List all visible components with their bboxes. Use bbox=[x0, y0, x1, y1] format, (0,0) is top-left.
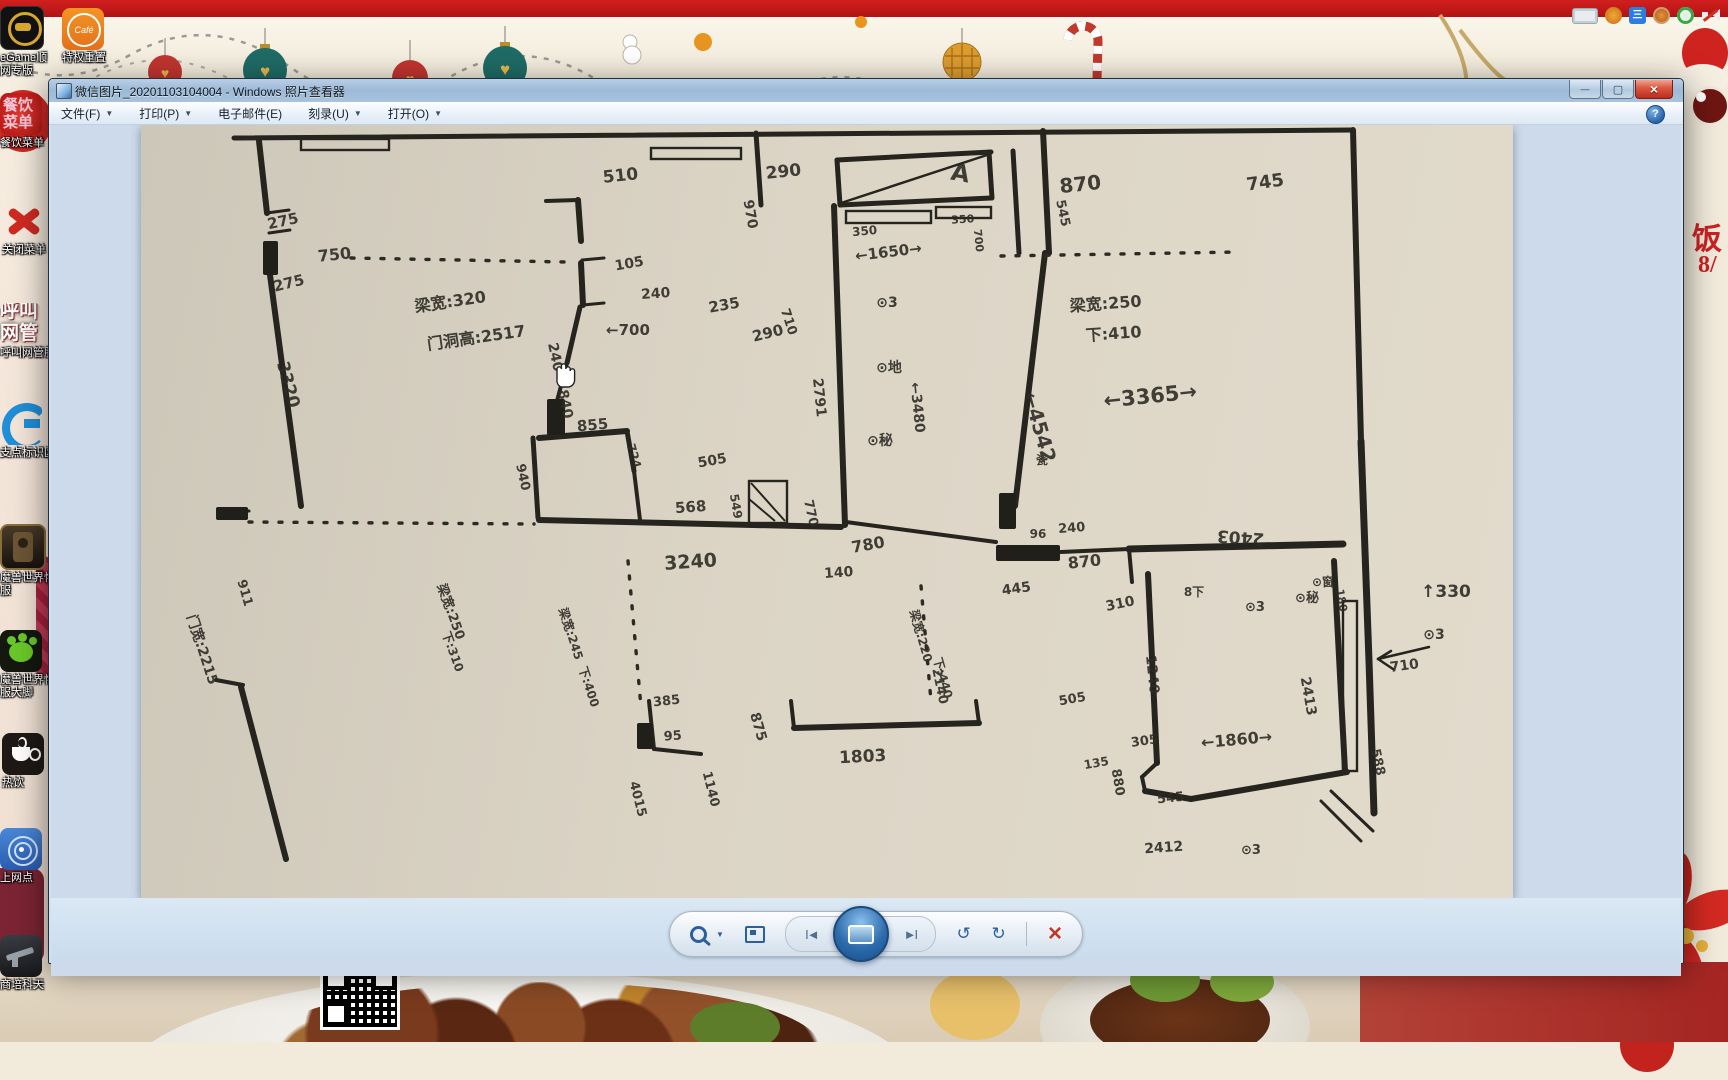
close-button[interactable]: × bbox=[1635, 80, 1673, 99]
plan-annotation: 140 bbox=[824, 564, 855, 582]
plan-annotation: 545 bbox=[1156, 790, 1185, 808]
plan-annotation: 385 bbox=[652, 693, 681, 711]
plan-annotation: 724 bbox=[624, 442, 644, 470]
menu-item-5[interactable]: 打开(O)▼ bbox=[388, 105, 442, 122]
menu-item-2[interactable]: 打印(P)▼ bbox=[139, 105, 192, 122]
plan-annotation: 2403 bbox=[1216, 525, 1265, 548]
plan-annotation: 290 bbox=[750, 321, 785, 346]
gun-icon bbox=[0, 935, 42, 977]
maximize-button[interactable]: ▢ bbox=[1602, 80, 1634, 99]
navigation-pill: I◄ ►I bbox=[785, 916, 936, 952]
floorplan-photo[interactable]: 5102908707452757502753320梁宽:320门洞高:25179… bbox=[141, 125, 1513, 898]
cafe-icon: Café bbox=[62, 8, 104, 50]
plan-annotation: 4015 bbox=[626, 780, 649, 819]
system-tray: 三 bbox=[1565, 6, 1718, 24]
plan-annotation: 1803 bbox=[839, 746, 887, 768]
slideshow-icon bbox=[848, 925, 874, 944]
wow-icon bbox=[0, 524, 46, 570]
plan-annotation: 梁宽:245 bbox=[556, 605, 587, 662]
egame-icon bbox=[0, 6, 44, 50]
window-title: 微信图片_20201103104004 - Windows 照片查看器 bbox=[75, 83, 345, 100]
plan-annotation: 549 bbox=[727, 493, 745, 520]
plan-annotation: 240 bbox=[1058, 520, 1086, 537]
plan-annotation: 门洞高:2517 bbox=[426, 321, 527, 354]
gsign-icon bbox=[0, 403, 42, 445]
plan-annotation: 2791 bbox=[809, 377, 829, 417]
java-icon bbox=[2, 733, 44, 775]
plan-annotation: 510 bbox=[602, 164, 640, 188]
plan-annotation: ←3480 bbox=[906, 382, 927, 434]
call-icon: 呼叫网管 bbox=[0, 303, 42, 345]
desktop-icon-label: 商培科天 bbox=[0, 979, 96, 992]
menu-icon: 餐饮菜单 bbox=[0, 93, 42, 135]
plan-annotation: 梁宽:220 bbox=[906, 607, 936, 664]
orange-dot bbox=[694, 33, 712, 51]
plan-annotation: 105 bbox=[614, 254, 646, 275]
rotate-right-button[interactable]: ↻ bbox=[992, 924, 1006, 944]
plan-annotation: 710 bbox=[1389, 656, 1420, 676]
plan-annotation: 880 bbox=[1108, 768, 1127, 797]
rotate-left-button[interactable]: ↺ bbox=[957, 924, 971, 944]
3vjia-blue-icon[interactable]: 三 bbox=[1629, 7, 1646, 24]
plan-annotation: 95 bbox=[663, 728, 682, 744]
snowman-ornament bbox=[623, 35, 641, 64]
plan-annotation: 瓷 bbox=[1036, 452, 1048, 467]
orange-dot bbox=[855, 16, 867, 28]
plan-annotation: 875 bbox=[746, 711, 769, 744]
santa-decoration bbox=[1680, 28, 1728, 138]
svg-text:♥: ♥ bbox=[500, 60, 510, 79]
volume-muted-icon[interactable] bbox=[1701, 7, 1718, 24]
chevron-down-icon: ▼ bbox=[716, 930, 724, 939]
plan-annotation: 505 bbox=[697, 451, 729, 472]
plan-annotation: 96 bbox=[1030, 527, 1047, 541]
floorplan-sketch: 5102908707452757502753320梁宽:320门洞高:25179… bbox=[141, 125, 1513, 898]
plan-annotation: ↑330 bbox=[1421, 582, 1471, 602]
plan-annotation: ←700 bbox=[606, 321, 650, 339]
help-icon[interactable]: ? bbox=[1646, 105, 1665, 124]
menu-item-4[interactable]: 刻录(U)▼ bbox=[308, 105, 362, 122]
plan-annotation: 911 bbox=[233, 578, 255, 608]
plan-annotation: 568 bbox=[674, 497, 706, 517]
plan-annotation: ⊙3 bbox=[1241, 843, 1261, 858]
wifi-icon bbox=[0, 828, 42, 870]
plan-annotation: 3320 bbox=[272, 359, 304, 410]
plan-annotation: ←1860→ bbox=[1200, 727, 1273, 752]
plan-annotation: 8下 bbox=[1184, 585, 1204, 599]
plan-annotation: 445 bbox=[1001, 579, 1032, 599]
plan-annotation: ←1650→ bbox=[854, 239, 923, 265]
plan-window-marks bbox=[301, 139, 1357, 771]
plan-annotation: ⊙3 bbox=[1245, 600, 1265, 615]
menu-item-1[interactable]: 文件(F)▼ bbox=[61, 105, 113, 122]
plan-annotation: 梁宽:250 bbox=[1068, 292, 1142, 316]
next-button[interactable]: ►I bbox=[904, 927, 916, 942]
plan-annotation: ←3365→ bbox=[1102, 379, 1198, 413]
plan-annotation: 235 bbox=[707, 293, 741, 316]
desktop-icon-特权重置[interactable]: Café特权重置 bbox=[62, 8, 154, 65]
toolbar-divider bbox=[1026, 922, 1027, 946]
plan-dashed-lines bbox=[249, 252, 1239, 707]
plan-annotation: 350 bbox=[951, 212, 975, 227]
plan-annotation: 下:400 bbox=[576, 665, 602, 709]
plan-annotation: 门宽:2215 bbox=[183, 612, 222, 686]
plan-annotation: 505 bbox=[1058, 690, 1087, 709]
menu-bar: 文件(F)▼打印(P)▼电子邮件(E)刻录(U)▼打开(O)▼ bbox=[49, 102, 1683, 125]
plan-annotation: 2412 bbox=[1144, 839, 1184, 858]
desktop: ♥ ♥ ♥ ♥ 饭 8/ bbox=[0, 0, 1728, 1080]
plan-annotations: 5102908707452757502753320梁宽:320门洞高:25179… bbox=[183, 158, 1471, 858]
previous-button[interactable]: I◄ bbox=[805, 927, 817, 942]
cloud-sync-green-icon[interactable] bbox=[1677, 7, 1694, 24]
hand-cursor bbox=[557, 364, 575, 387]
window-icon bbox=[56, 83, 72, 99]
plan-annotation: 290 bbox=[765, 160, 803, 184]
photo-viewer-window: 微信图片_20201103104004 - Windows 照片查看器 — ▢ … bbox=[48, 78, 1684, 964]
netbar-orange-icon[interactable] bbox=[1653, 7, 1670, 24]
plan-annotation: 3240 bbox=[663, 549, 717, 575]
plan-annotation: 750 bbox=[317, 243, 352, 265]
plan-annotation: 545 bbox=[1052, 198, 1072, 228]
plan-annotation: 870 bbox=[1058, 170, 1102, 198]
plan-annotation: ⊙3 bbox=[876, 295, 897, 311]
plan-annotation: 855 bbox=[576, 415, 609, 436]
plan-annotation: 240 bbox=[641, 285, 672, 303]
plan-annotation: 970 bbox=[740, 199, 761, 231]
plan-annotation: 梁宽:320 bbox=[412, 287, 487, 316]
plan-annotation: ⊙地 bbox=[876, 359, 902, 376]
plan-annotation: ⊙秘 bbox=[867, 432, 893, 449]
viewer-toolbar: ▼ I◄ ►I ↺ ↻ × bbox=[669, 911, 1083, 957]
plan-annotation: 870 bbox=[1067, 550, 1102, 572]
plan-annotation: 1240 bbox=[1142, 654, 1162, 695]
closex-icon bbox=[2, 200, 44, 242]
plan-annotation: 350 bbox=[852, 223, 878, 239]
paw-icon bbox=[0, 630, 42, 672]
gold-ornament bbox=[943, 28, 981, 81]
right-banner-char-2: 8/ bbox=[1698, 252, 1717, 279]
plan-annotation: ⊙窗 bbox=[1312, 574, 1334, 589]
plan-walls bbox=[216, 130, 1429, 859]
menu-item-3[interactable]: 电子邮件(E) bbox=[218, 105, 282, 122]
plan-annotation: 1140 bbox=[699, 770, 722, 809]
plan-annotation: ⊙3 bbox=[1423, 627, 1444, 643]
delete-button[interactable]: × bbox=[1048, 924, 1062, 944]
zoom-button[interactable]: ▼ bbox=[690, 926, 724, 943]
plan-annotation: 745 bbox=[1245, 170, 1285, 196]
viewer-content: 5102908707452757502753320梁宽:320门洞高:25179… bbox=[51, 125, 1681, 976]
plan-annotation: 780 bbox=[850, 532, 886, 557]
minimize-button[interactable]: — bbox=[1569, 80, 1601, 99]
plan-annotation: 310 bbox=[1104, 593, 1136, 615]
magnifier-icon bbox=[690, 926, 707, 943]
plan-annotation: 下:410 bbox=[1085, 322, 1142, 345]
plan-annotation: 135 bbox=[1083, 754, 1110, 772]
plan-annotation: 700 bbox=[971, 229, 986, 254]
plan-annotation: 940 bbox=[512, 462, 532, 492]
fit-to-window-button[interactable] bbox=[745, 926, 765, 943]
desktop-icon-label: 特权重置 bbox=[62, 52, 158, 65]
slideshow-button[interactable] bbox=[833, 906, 889, 962]
plan-annotation: A bbox=[949, 158, 973, 189]
pet-orange-icon[interactable] bbox=[1605, 7, 1622, 24]
title-bar[interactable]: 微信图片_20201103104004 - Windows 照片查看器 — ▢ … bbox=[49, 79, 1683, 103]
keyboard-icon[interactable] bbox=[1572, 8, 1598, 24]
plan-annotation: 2413 bbox=[1297, 676, 1320, 717]
plan-annotation: ⊙秘 bbox=[1295, 590, 1319, 606]
